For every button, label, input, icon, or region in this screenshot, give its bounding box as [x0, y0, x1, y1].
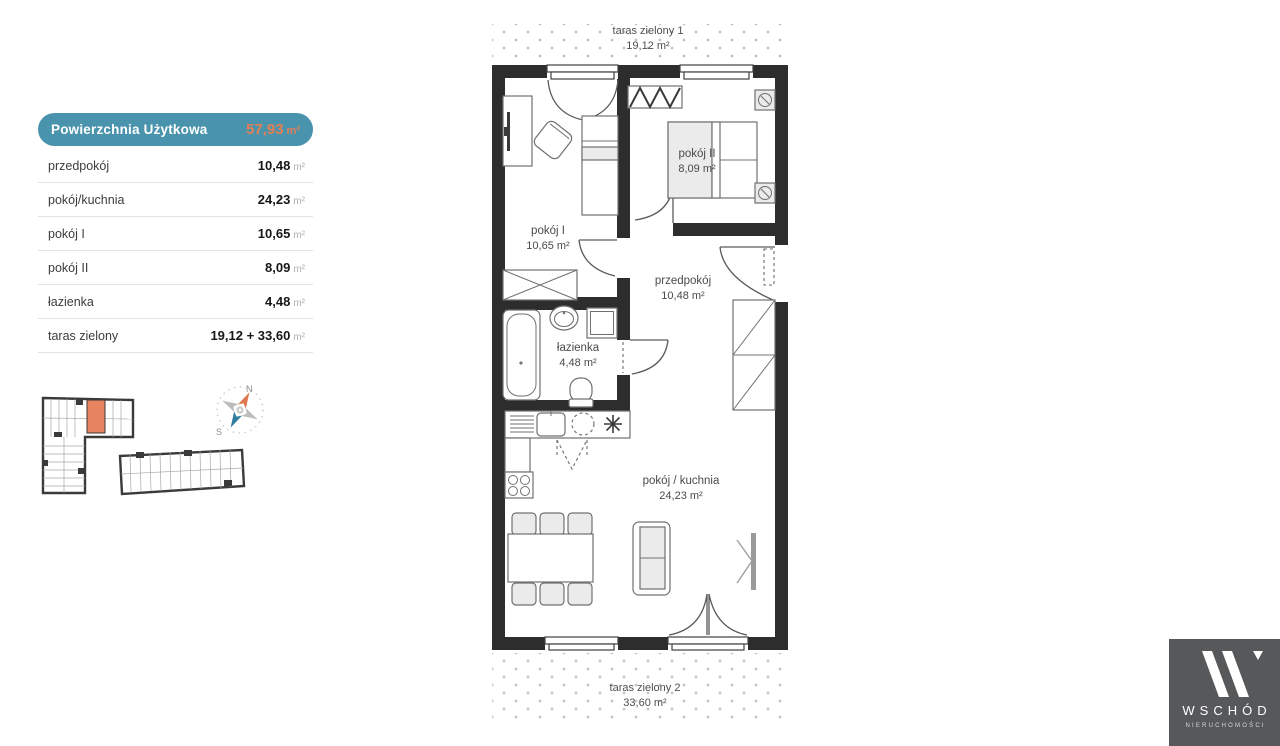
fridge-symbol	[604, 415, 622, 433]
legend-row-przedpokoj: przedpokój 10,48m²	[38, 149, 313, 183]
room-label-pokoj-2: pokój II 8,09 m²	[678, 147, 715, 177]
door-pokoj-1	[579, 240, 617, 276]
agency-logo: WSCHÓD NIERUCHOMOŚCI	[1169, 639, 1280, 746]
kitchen-sink	[537, 411, 565, 436]
logo-subtitle-text: NIERUCHOMOŚCI	[1169, 723, 1280, 729]
highlighted-unit	[87, 400, 105, 433]
pokoj-2-furniture	[628, 86, 775, 203]
stove	[505, 472, 533, 498]
legend-row-pokoj-1: pokój I 10,65m²	[38, 217, 313, 251]
room-label-pokoj-1: pokój I 10,65 m²	[526, 224, 569, 254]
toilet	[569, 378, 593, 407]
hood-dashed	[557, 440, 587, 469]
terrace-1-label: taras zielony 1 19,12 m²	[613, 24, 684, 54]
compass-south-arrow	[227, 411, 242, 429]
legend-row-pokoj-2: pokój II 8,09m²	[38, 251, 313, 285]
kitchen-living-furniture	[505, 411, 756, 605]
bathtub	[503, 310, 540, 400]
building-2-outline	[120, 450, 244, 494]
compass-south-label: S	[216, 427, 222, 437]
tv-on-wall	[507, 112, 510, 151]
compass-north-label: N	[246, 384, 253, 394]
sofa	[633, 522, 670, 595]
legend-header-label: Powierzchnia Użytkowa	[51, 122, 208, 137]
nightstand-lamp-bottom	[755, 183, 775, 203]
hall-wardrobe	[733, 300, 775, 410]
floorplan-page: Powierzchnia Użytkowa 57,93m² przedpokój…	[0, 0, 1280, 746]
legend-row-pokoj-kuchnia: pokój/kuchnia 24,23m²	[38, 183, 313, 217]
pokoj-1-furniture	[503, 96, 618, 300]
legend-row-taras: taras zielony 19,12 + 33,60m²	[38, 319, 313, 353]
counter-left	[505, 438, 530, 472]
washing-machine	[587, 308, 617, 338]
dining-set	[508, 513, 593, 605]
bed-single	[582, 116, 618, 215]
przedpokoj-furniture	[733, 300, 775, 410]
room-label-lazienka: łazienka 4,48 m²	[557, 341, 599, 371]
desk-chair	[532, 119, 574, 161]
entrance-door	[720, 247, 775, 300]
wardrobe-crossed	[503, 270, 577, 300]
room-label-pokoj-kuchnia: pokój / kuchnia 24,23 m²	[643, 474, 720, 504]
washbasin	[550, 306, 578, 330]
apartment-floorplan	[490, 63, 790, 653]
legend-header: Powierzchnia Użytkowa 57,93m²	[38, 113, 313, 146]
area-legend-panel: Powierzchnia Użytkowa 57,93m² przedpokój…	[38, 113, 313, 353]
terrace-2-label: taras zielony 2 33,60 m²	[610, 681, 681, 711]
legend-rows: przedpokój 10,48m² pokój/kuchnia 24,23m²…	[38, 149, 313, 353]
door-pokoj-2	[635, 185, 673, 223]
wardrobe-hatched	[628, 86, 682, 108]
legend-row-lazienka: łazienka 4,48m²	[38, 285, 313, 319]
door-lazienka	[623, 340, 668, 374]
building-1-outline	[43, 398, 133, 493]
logo-brand-text: WSCHÓD	[1169, 703, 1280, 718]
tv-living	[737, 533, 756, 590]
logo-w-icon	[1169, 639, 1280, 701]
room-label-przedpokoj: przedpokój 10,48 m²	[655, 274, 711, 304]
legend-header-value: 57,93m²	[246, 121, 300, 138]
nightstand-lamp-top	[755, 90, 775, 110]
